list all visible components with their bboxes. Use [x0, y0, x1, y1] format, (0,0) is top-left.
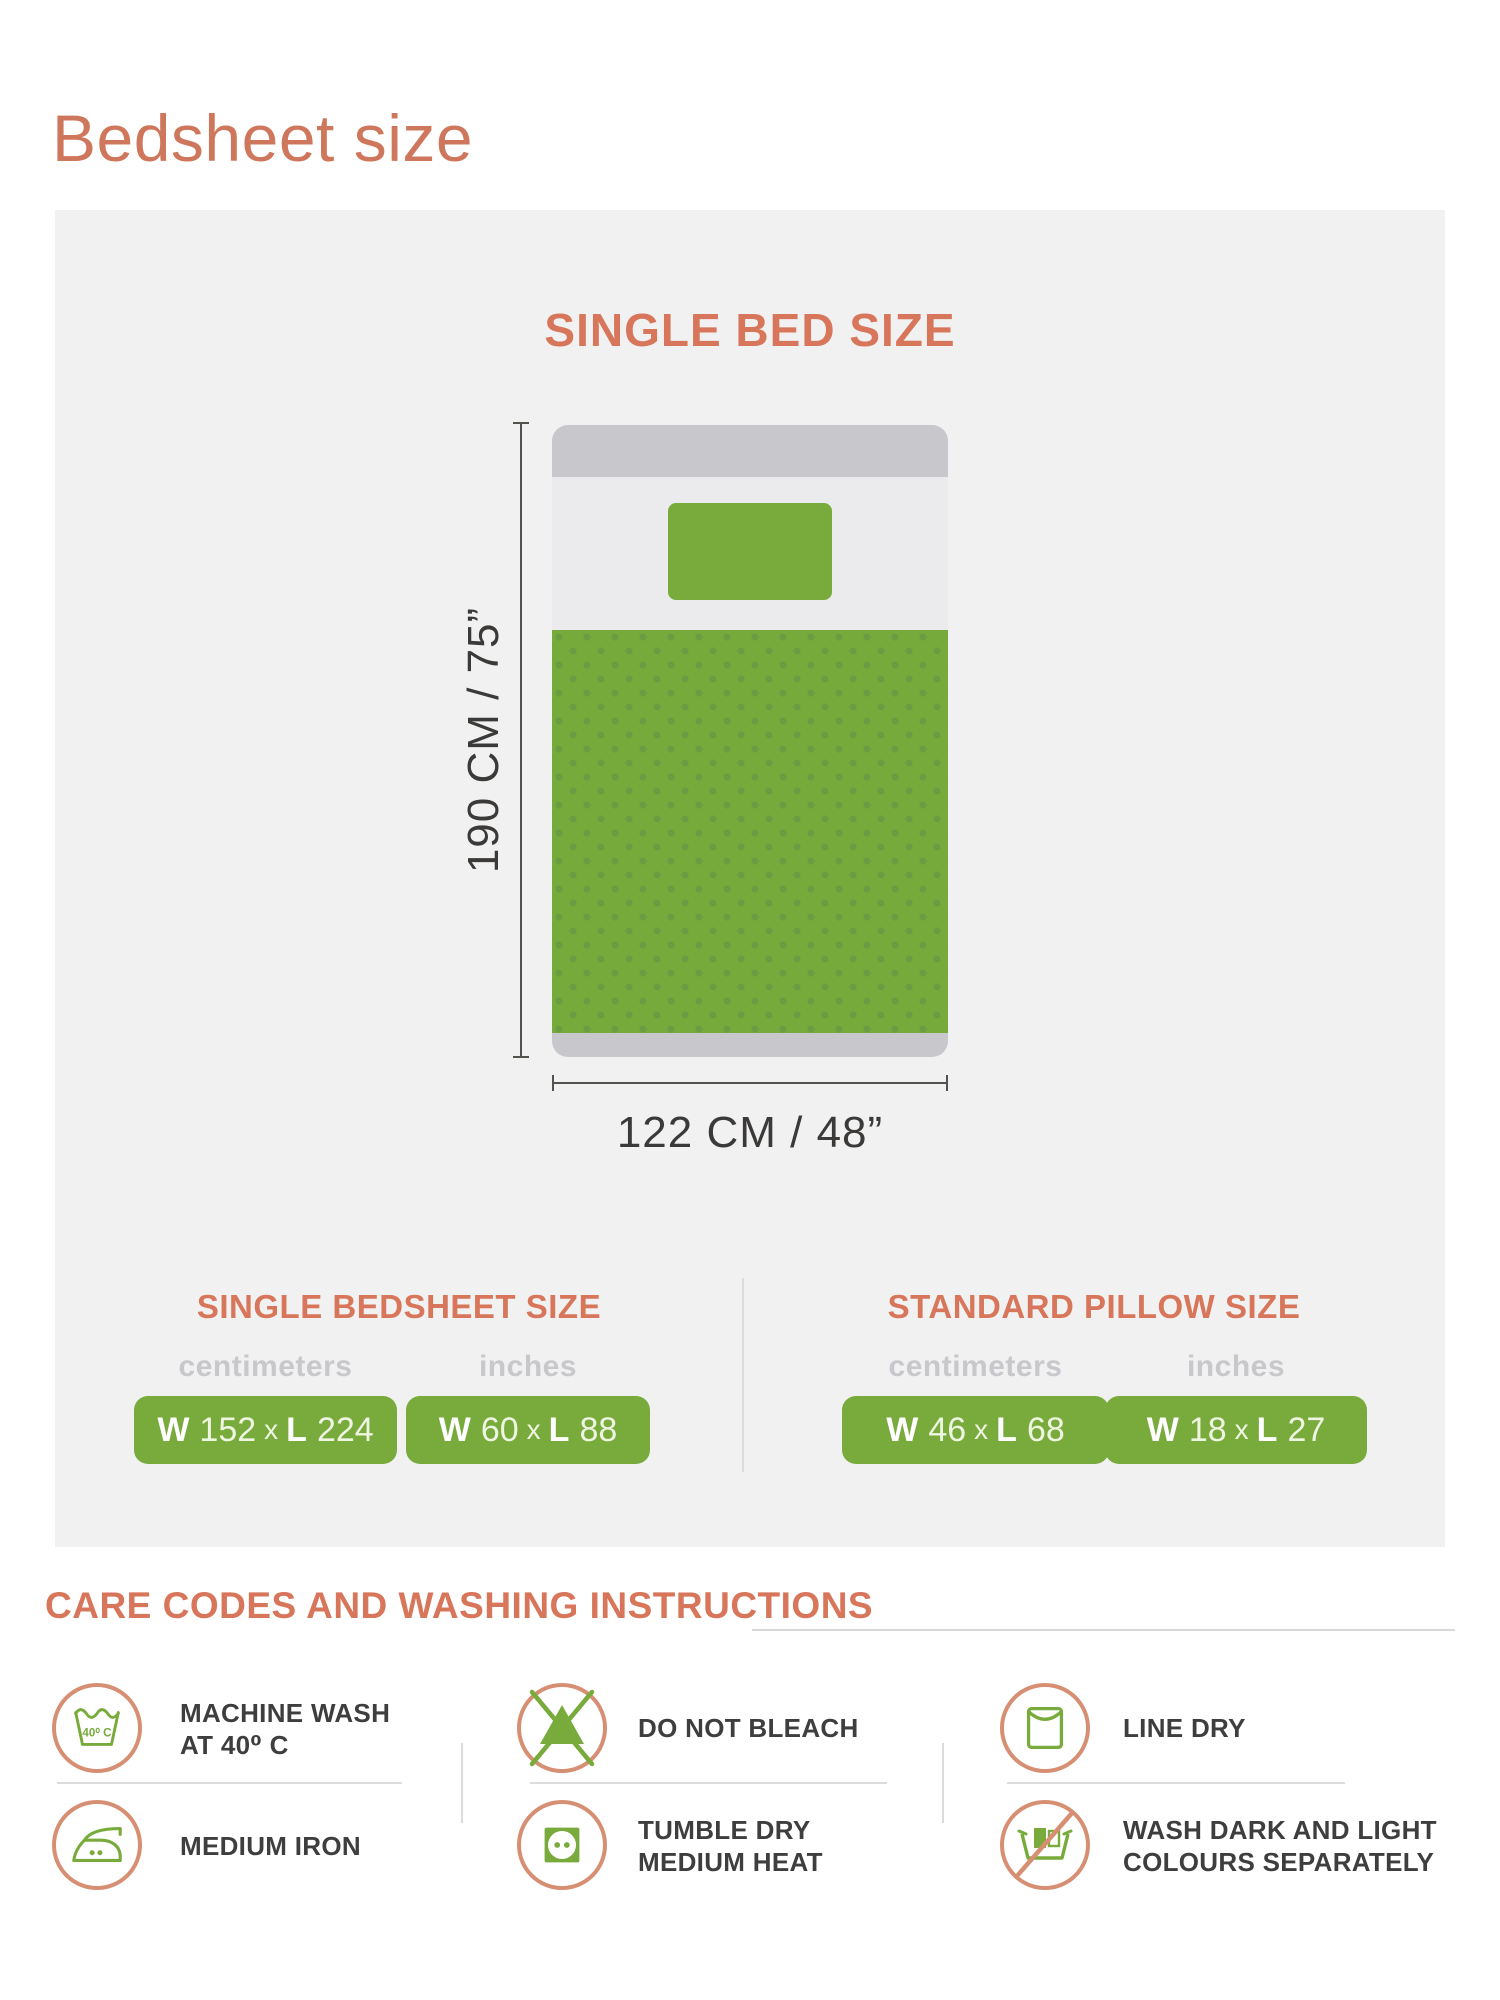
- tumble-dry-icon: [517, 1800, 607, 1890]
- length-key: L: [996, 1411, 1017, 1450]
- machine-wash-label: MACHINE WASH AT 40⁰ C: [180, 1697, 390, 1761]
- length-key: L: [1257, 1411, 1278, 1450]
- width-value: 152: [199, 1411, 256, 1450]
- care-divider: [461, 1743, 463, 1823]
- width-value: 18: [1189, 1411, 1227, 1450]
- care-divider: [942, 1743, 944, 1823]
- pillow-size-heading: STANDARD PILLOW SIZE: [743, 1288, 1445, 1326]
- wash-separately-icon: [1000, 1800, 1090, 1890]
- bedsheet-inches-badge: W 60 x L 88: [406, 1396, 650, 1464]
- line-dry-icon: [1000, 1683, 1090, 1773]
- bedsheet-size-heading: SINGLE BEDSHEET SIZE: [55, 1288, 743, 1326]
- single-bed-illustration: [552, 425, 948, 1057]
- do-not-bleach-icon: [517, 1683, 607, 1773]
- height-dimension-label: 190 CM / 75”: [459, 607, 509, 873]
- width-key: W: [439, 1411, 471, 1450]
- length-value: 27: [1287, 1411, 1325, 1450]
- height-dimension-line: [520, 423, 522, 1057]
- length-key: L: [286, 1411, 307, 1450]
- bed-headboard: [552, 425, 948, 477]
- medium-iron-label: MEDIUM IRON: [180, 1830, 361, 1862]
- by-separator: x: [1235, 1414, 1249, 1446]
- width-key: W: [886, 1411, 918, 1450]
- pillow-cm-label: centimeters: [842, 1350, 1109, 1384]
- width-dimension-line: [553, 1082, 947, 1084]
- bed-pillow: [668, 503, 832, 600]
- pillow-inches-label: inches: [1105, 1350, 1367, 1384]
- width-key: W: [1147, 1411, 1179, 1450]
- do-not-bleach-label: DO NOT BLEACH: [638, 1712, 859, 1744]
- machine-wash-icon: 40⁰ C: [52, 1683, 142, 1773]
- section-divider: [742, 1278, 744, 1472]
- line-dry-label: LINE DRY: [1123, 1712, 1246, 1744]
- length-value: 88: [579, 1411, 617, 1450]
- pillow-inches-badge: W 18 x L 27: [1105, 1396, 1367, 1464]
- infographic-page: Bedsheet size SINGLE BED SIZE 190 CM / 7…: [0, 0, 1500, 2000]
- bedsheet-cm-badge: W 152 x L 224: [134, 1396, 397, 1464]
- bedsheet-inches-label: inches: [406, 1350, 650, 1384]
- bed-size-heading: SINGLE BED SIZE: [0, 303, 1500, 357]
- bed-blanket: [552, 630, 948, 1035]
- by-separator: x: [527, 1414, 541, 1446]
- bed-footboard: [552, 1033, 948, 1057]
- care-divider: [1007, 1782, 1345, 1784]
- width-dimension-label: 122 CM / 48”: [0, 1108, 1500, 1158]
- length-key: L: [549, 1411, 570, 1450]
- pillow-cm-badge: W 46 x L 68: [842, 1396, 1109, 1464]
- width-value: 60: [481, 1411, 519, 1450]
- care-divider: [57, 1782, 402, 1784]
- by-separator: x: [264, 1414, 278, 1446]
- wash-separately-label: WASH DARK AND LIGHT COLOURS SEPARATELY: [1123, 1814, 1437, 1878]
- care-codes-heading: CARE CODES AND WASHING INSTRUCTIONS: [45, 1585, 873, 1627]
- width-key: W: [157, 1411, 189, 1450]
- width-value: 46: [928, 1411, 966, 1450]
- medium-iron-icon: [52, 1800, 142, 1890]
- length-value: 224: [317, 1411, 374, 1450]
- page-title: Bedsheet size: [52, 100, 473, 176]
- by-separator: x: [974, 1414, 988, 1446]
- tumble-dry-label: TUMBLE DRY MEDIUM HEAT: [638, 1814, 823, 1878]
- care-heading-rule: [752, 1629, 1455, 1631]
- bedsheet-cm-label: centimeters: [134, 1350, 397, 1384]
- wash-temperature-text: 40⁰ C: [82, 1727, 112, 1740]
- care-divider: [530, 1782, 887, 1784]
- length-value: 68: [1027, 1411, 1065, 1450]
